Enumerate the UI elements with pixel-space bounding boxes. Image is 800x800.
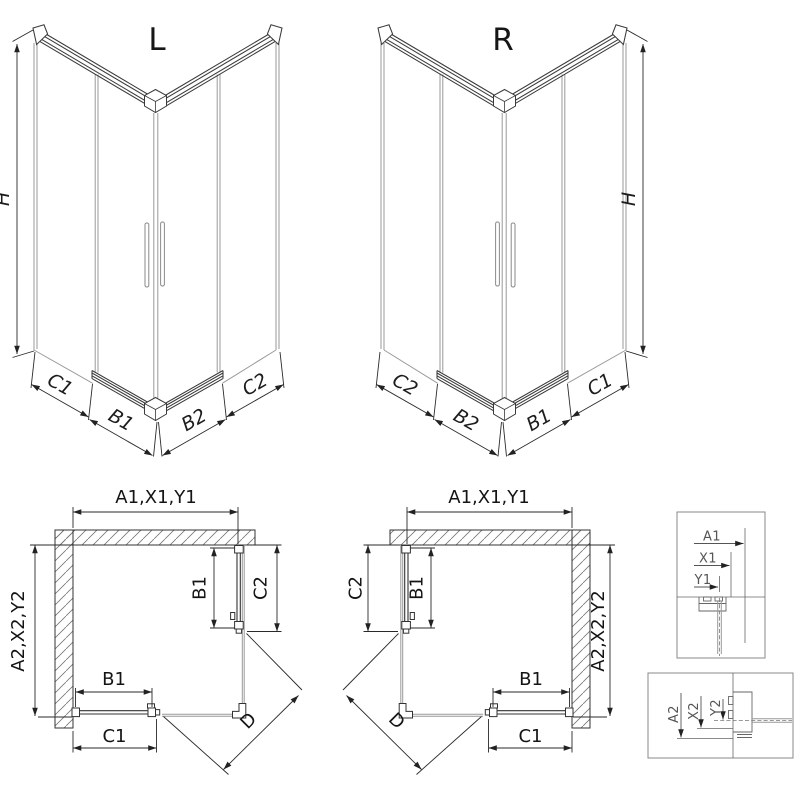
- iso-right-title: R: [492, 22, 514, 58]
- plan-right-door-side-dim-label: B1: [407, 576, 428, 600]
- plan-left-door-side-dim-label: B1: [190, 576, 211, 600]
- iso-left-height-dim-label: H: [0, 192, 14, 206]
- shower-enclosure-drawing: L H C1 B1 B2 C2 R H C2 B2 B1 C1 A1,X1,Y1…: [0, 0, 800, 800]
- iso-left-dim-c2: C2: [239, 369, 272, 401]
- detail-bottom-profile: [729, 692, 753, 738]
- plan-right-fixed-side-dim-label: C2: [346, 576, 367, 600]
- iso-right-dim-c1: C1: [584, 369, 617, 401]
- detail-top-glass: [718, 601, 722, 654]
- plan-left-side-wall: [55, 530, 73, 728]
- plan-right-top-wall: [390, 530, 590, 545]
- plan-right-top-dim-label: A1,X1,Y1: [448, 487, 529, 508]
- plan-left-door-bottom-dim-label: B1: [102, 669, 126, 690]
- plan-left-fixed-bottom-dim-label: C1: [102, 726, 126, 747]
- iso-view-left: L H C1 B1 B2 C2: [0, 22, 284, 457]
- detail-vertical-section: A2 X2 Y2: [648, 673, 793, 758]
- plan-right-door-bottom-dim-label: B1: [519, 669, 543, 690]
- plan-right-side-dim-label: A2,X2,Y2: [588, 590, 609, 671]
- iso-view-right: R H C2 B2 B1 C1: [376, 22, 648, 457]
- iso-left-title: L: [148, 22, 166, 58]
- plan-left-fixed-side-dim-label: C2: [251, 576, 272, 600]
- iso-right-dim-c2: C2: [389, 369, 422, 401]
- detail-bottom-reference-lines: [677, 673, 733, 758]
- detail-horizontal-section: A1 X1 Y1: [677, 512, 765, 658]
- detail-top-dim-a1: A1: [703, 530, 721, 545]
- plan-view-left: A1,X1,Y1 A2,X2,Y2 B1 C2 B1 C1 D: [8, 487, 302, 775]
- detail-top-profile: [699, 597, 726, 611]
- detail-top-dim-x1: X1: [699, 552, 717, 567]
- plan-left-top-dim-label: A1,X1,Y1: [115, 487, 196, 508]
- iso-left-dim-c1: C1: [44, 369, 77, 401]
- iso-right-height-dim-label: H: [618, 192, 640, 206]
- detail-top-dim-y1: Y1: [693, 573, 711, 588]
- plan-right-fixed-bottom-dim-label: C1: [518, 726, 542, 747]
- detail-bottom-dim-a2: A2: [667, 705, 682, 723]
- plan-view-right: A1,X1,Y1 A2,X2,Y2 B1 C2 B1 C1 D: [343, 487, 615, 775]
- detail-bottom-dim-x2: X2: [687, 702, 702, 720]
- plan-left-side-dim-label: A2,X2,Y2: [8, 590, 29, 671]
- technical-drawing-page: L H C1 B1 B2 C2 R H C2 B2 B1 C1 A1,X1,Y1…: [0, 0, 800, 800]
- detail-bottom-dim-y2: Y2: [709, 699, 724, 717]
- plan-left-top-wall: [55, 530, 255, 545]
